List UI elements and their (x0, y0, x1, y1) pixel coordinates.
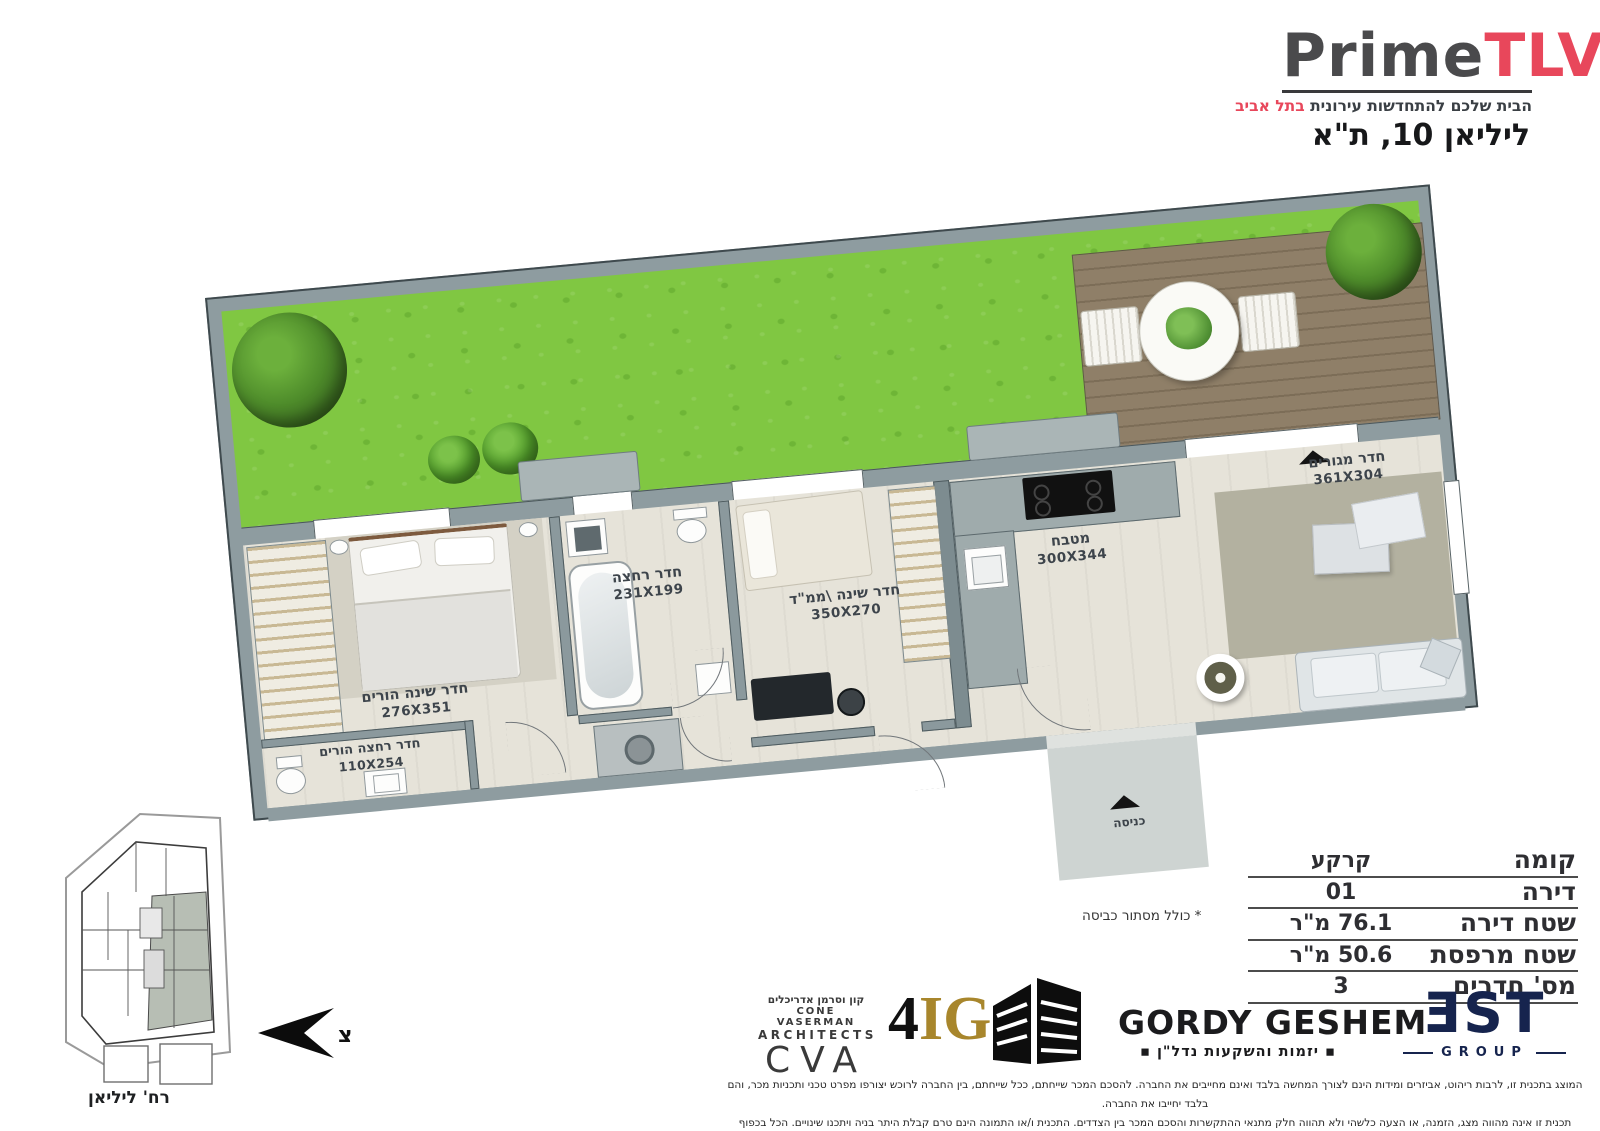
sink-basin (373, 773, 401, 793)
brand-tagline-accent: בתל אביב (1235, 97, 1305, 115)
double-bed (348, 523, 522, 692)
blanket (355, 589, 518, 691)
spec-table: קומה קרקע דירה 01 שטח דירה 76.1 מ"ר שטח … (1248, 846, 1578, 1004)
dash (1403, 1052, 1433, 1054)
sink-basin (574, 526, 602, 552)
pillow (359, 539, 423, 576)
brand-tagline: הבית שלכם להתחדשות עירונית בתל אביב (1282, 97, 1532, 115)
burner (1033, 484, 1050, 501)
north-arrow-svg: צ (252, 1002, 362, 1064)
north-letter: צ (338, 1023, 352, 1048)
spec-row-balcony-area: שטח מרפסת 50.6 מ"ר (1248, 941, 1578, 973)
pillow (742, 509, 778, 580)
pillow (434, 536, 495, 566)
sofa-cushion (1310, 652, 1379, 698)
north-arrow-icon: צ (252, 1002, 362, 1068)
bst-group-logo: ƎST GROUP (1392, 986, 1577, 1060)
site-key-plan (48, 800, 263, 1089)
project-address: ליליאן 10, ת"א (1312, 118, 1530, 153)
brand-prime: Prime (1282, 21, 1484, 91)
brand-logo: PrimeTLV הבית שלכם להתחדשות עירונית בתל … (1282, 26, 1532, 115)
shower-drain (623, 733, 656, 766)
bottom-street-label: רח' ליליאן (88, 1088, 170, 1108)
burner (1086, 495, 1103, 512)
spec-note: * כולל מסתור כביסה (1082, 908, 1238, 924)
brand-wordmark: PrimeTLV (1282, 26, 1532, 86)
disclaimer-line-2: תכנית זו אינה מהווה מצג, הזמנה, או הצעה … (720, 1114, 1590, 1131)
bst-group-line: GROUP (1392, 1045, 1577, 1060)
dash (1536, 1052, 1566, 1054)
spec-row-floor: קומה קרקע (1248, 846, 1578, 878)
desk (751, 672, 835, 721)
shower-stall (593, 718, 683, 778)
deck-chair (1237, 291, 1300, 352)
single-bed (735, 490, 873, 592)
legal-disclaimer: המוצג בתכנית זו, לרבות ריהוט, אביזרים ומ… (720, 1076, 1590, 1131)
flyer-page: PrimeTLV הבית שלכם להתחדשות עירונית בתל … (0, 0, 1600, 1131)
building-icon-svg (985, 972, 1089, 1068)
cooktop (1022, 470, 1115, 520)
spec-row-apartment: דירה 01 (1248, 878, 1578, 910)
gordy-geshem-logo: GORDY GESHEM ▪ יזמות והשקעות נדל"ן ▪ (1118, 1006, 1358, 1060)
sink (565, 518, 608, 558)
burner (1085, 479, 1102, 496)
deck-chair (1080, 306, 1143, 367)
brand-tlv: TLV (1484, 21, 1600, 91)
4ig-building-icon (985, 972, 1089, 1072)
floor-plan: כניסה חדר שינה הורים 276X351 חדר רחצה הו… (205, 184, 1478, 820)
4ig-logo: 4IG (888, 988, 991, 1050)
entrance-arrow-icon (1109, 794, 1140, 810)
site-plan-drawing (48, 800, 263, 1085)
spec-row-apartment-area: שטח דירה 76.1 מ"ר (1248, 909, 1578, 941)
cva-architects-logo: קון וסרמן אדריכלים CONE VASERMAN ARCHITE… (758, 994, 874, 1079)
burner (1034, 500, 1051, 517)
disclaimer-line-1: המוצג בתכנית זו, לרבות ריהוט, אביזרים ומ… (720, 1076, 1590, 1114)
